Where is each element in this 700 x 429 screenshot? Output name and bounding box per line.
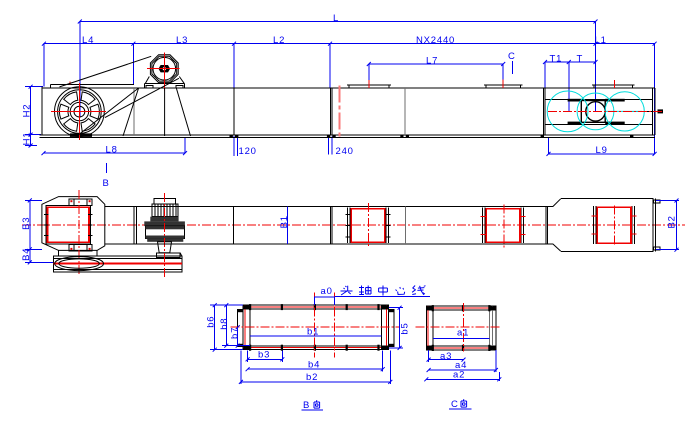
svg-text:L8: L8 [106,145,118,156]
svg-text:b6: b6 [206,316,217,328]
svg-text:L: L [333,13,339,24]
svg-text:T: T [577,53,584,64]
svg-text:L7: L7 [426,55,438,66]
svg-text:b4: b4 [308,359,320,370]
svg-text:L2: L2 [273,35,285,46]
svg-text:L3: L3 [176,35,188,46]
svg-text:b8: b8 [219,318,230,330]
svg-text:B2: B2 [667,215,678,228]
svg-text:b1: b1 [307,327,319,338]
svg-text:a1: a1 [457,328,469,339]
svg-text:B4: B4 [21,248,32,261]
svg-text:a3: a3 [440,351,452,362]
svg-text:240: 240 [336,146,354,157]
svg-text:B3: B3 [21,217,32,230]
svg-text:B1: B1 [279,215,290,228]
svg-text:b7: b7 [230,327,241,339]
svg-text:a0: a0 [321,286,333,297]
svg-text:b5: b5 [400,322,411,334]
svg-text:NX2440: NX2440 [416,35,455,46]
svg-text:L9: L9 [596,145,608,156]
svg-text:B: B [103,178,110,189]
svg-text:H2: H2 [22,104,33,118]
svg-text:120: 120 [239,146,257,157]
svg-text:b3: b3 [258,350,270,361]
svg-text:b2: b2 [306,372,318,383]
svg-text:T1: T1 [550,53,563,64]
svg-text:C: C [508,51,516,62]
svg-text:a2: a2 [453,370,465,381]
svg-text:L1: L1 [595,35,607,46]
svg-text:L4: L4 [82,35,94,46]
